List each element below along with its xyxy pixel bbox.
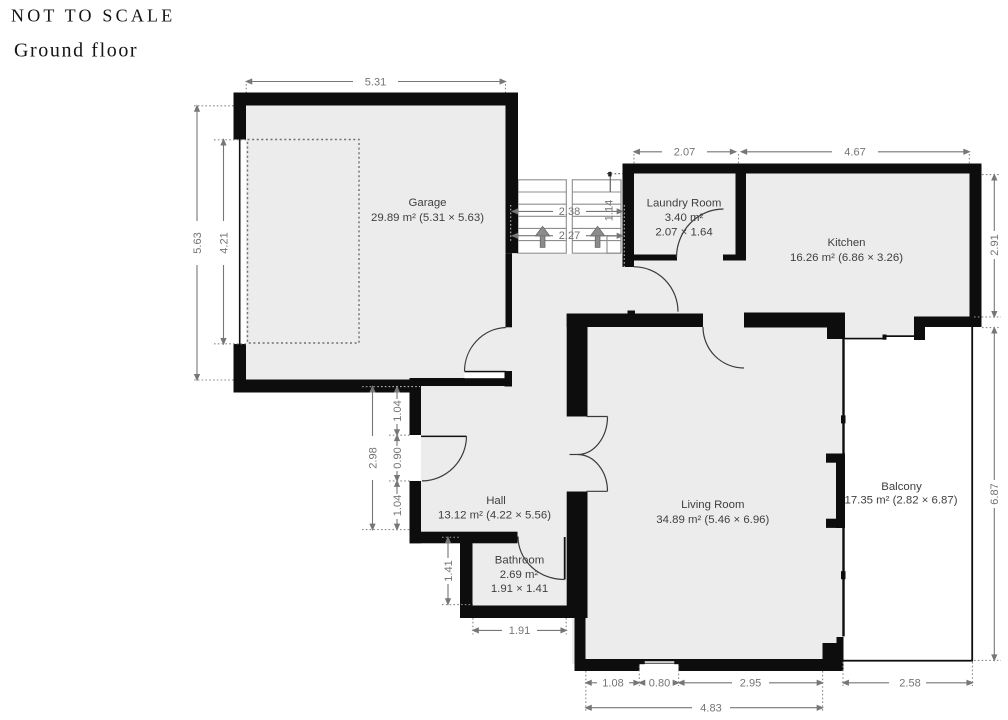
svg-text:16.26 m² (6.86 × 3.26): 16.26 m² (6.86 × 3.26) bbox=[790, 252, 903, 264]
svg-text:2.07 × 1.64: 2.07 × 1.64 bbox=[655, 227, 712, 239]
svg-text:2.58: 2.58 bbox=[899, 678, 920, 690]
svg-text:0.80: 0.80 bbox=[649, 678, 670, 690]
svg-text:Garage: Garage bbox=[409, 197, 447, 209]
svg-text:1.14: 1.14 bbox=[604, 200, 616, 221]
svg-text:2.95: 2.95 bbox=[740, 678, 761, 690]
svg-text:3.40 m²: 3.40 m² bbox=[665, 212, 704, 224]
svg-text:2.91: 2.91 bbox=[989, 234, 1001, 255]
svg-text:NOT TO SCALE: NOT TO SCALE bbox=[11, 6, 175, 26]
svg-text:2.98: 2.98 bbox=[367, 447, 379, 468]
svg-text:4.83: 4.83 bbox=[700, 703, 721, 715]
svg-text:17.35 m² (2.82 × 6.87): 17.35 m² (2.82 × 6.87) bbox=[844, 495, 957, 507]
svg-text:Ground floor: Ground floor bbox=[14, 40, 138, 62]
svg-text:5.63: 5.63 bbox=[192, 232, 204, 253]
svg-text:Living Room: Living Room bbox=[681, 499, 744, 511]
svg-text:1.41: 1.41 bbox=[443, 560, 455, 581]
svg-text:2.27: 2.27 bbox=[559, 230, 580, 242]
svg-text:29.89 m² (5.31 × 5.63): 29.89 m² (5.31 × 5.63) bbox=[371, 212, 484, 224]
svg-text:2.07: 2.07 bbox=[674, 147, 695, 159]
svg-text:2.69 m²: 2.69 m² bbox=[500, 569, 539, 581]
svg-text:4.21: 4.21 bbox=[218, 232, 230, 253]
svg-text:Balcony: Balcony bbox=[881, 481, 922, 493]
svg-text:Laundry Room: Laundry Room bbox=[647, 198, 722, 210]
svg-text:1.04: 1.04 bbox=[392, 400, 404, 421]
svg-text:1.91: 1.91 bbox=[509, 625, 530, 637]
svg-text:Bathroom: Bathroom bbox=[495, 555, 544, 567]
svg-text:2.38: 2.38 bbox=[559, 206, 580, 218]
svg-text:5.31: 5.31 bbox=[365, 76, 386, 88]
svg-text:Hall: Hall bbox=[486, 495, 506, 507]
svg-text:1.08: 1.08 bbox=[602, 678, 623, 690]
svg-text:1.91 × 1.41: 1.91 × 1.41 bbox=[491, 583, 548, 595]
svg-text:34.89 m² (5.46 × 6.96): 34.89 m² (5.46 × 6.96) bbox=[656, 514, 769, 526]
svg-text:1.04: 1.04 bbox=[392, 495, 404, 516]
svg-text:6.87: 6.87 bbox=[989, 483, 1001, 504]
svg-text:Kitchen: Kitchen bbox=[828, 237, 866, 249]
svg-text:13.12 m² (4.22 × 5.56): 13.12 m² (4.22 × 5.56) bbox=[438, 510, 551, 522]
svg-text:4.67: 4.67 bbox=[844, 147, 865, 159]
svg-text:0.90: 0.90 bbox=[392, 447, 404, 468]
